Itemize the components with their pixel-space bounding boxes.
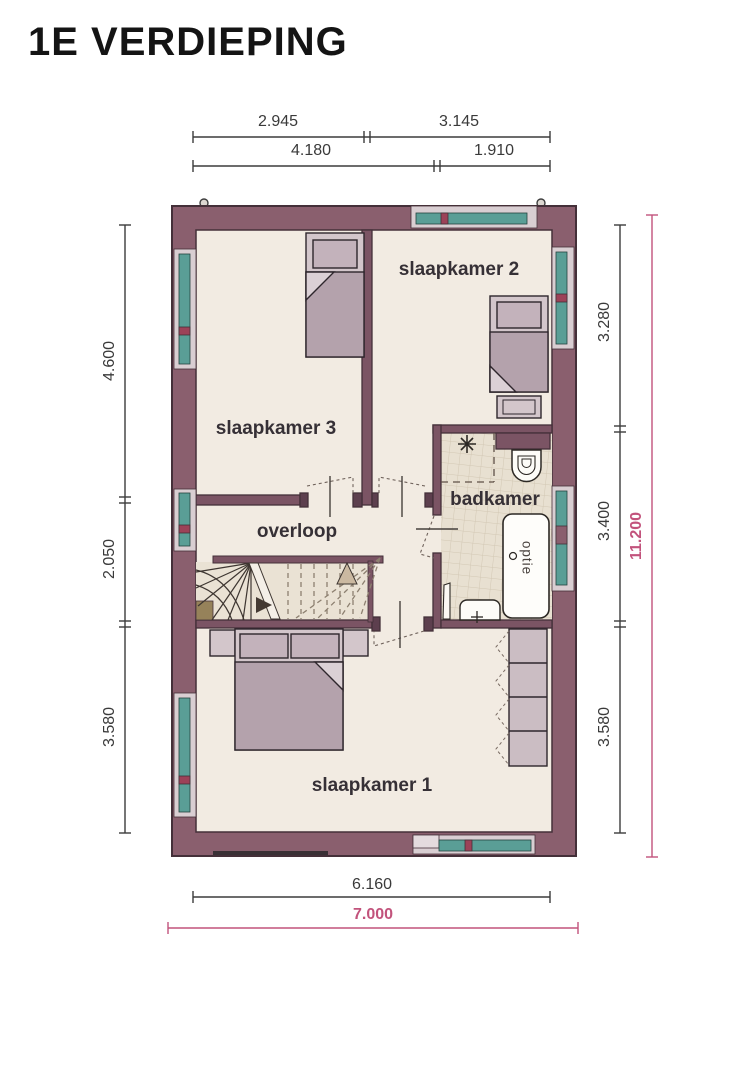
- room-label-overloop: overloop: [257, 521, 337, 543]
- sink: [460, 600, 500, 623]
- window-top-slaapkamer2: [411, 206, 537, 228]
- dim-right-outer: [646, 215, 658, 857]
- floor-plan-page: 1E VERDIEPING slaapkamer 3 slaapkamer 2 …: [0, 0, 743, 1080]
- dim-label-7000: 7.000: [353, 906, 393, 924]
- dim-label-4180: 4.180: [291, 142, 331, 160]
- dim-label-3580-left: 3.580: [101, 707, 119, 747]
- window-bottom-slaapkamer1: [413, 835, 535, 854]
- dim-label-3280: 3.280: [596, 302, 614, 342]
- bed-slaapkamer2: [490, 296, 548, 418]
- dim-label-1910: 1.910: [474, 142, 514, 160]
- dim-label-2945: 2.945: [258, 113, 298, 131]
- bedside-table-right: [343, 630, 368, 656]
- toilet: [512, 450, 541, 482]
- room-label-slaapkamer-1: slaapkamer 1: [312, 775, 432, 797]
- page-title: 1E VERDIEPING: [28, 20, 348, 65]
- bathtub-option-label: optie: [520, 541, 535, 575]
- dim-label-6160: 6.160: [352, 876, 392, 894]
- room-label-slaapkamer-3: slaapkamer 3: [216, 418, 336, 440]
- bed-slaapkamer3: [306, 233, 364, 357]
- radiator: [443, 583, 450, 619]
- threshold-line: [213, 851, 328, 855]
- window-right-slaapkamer2: [552, 247, 574, 349]
- window-right-badkamer: [552, 486, 574, 591]
- window-left-slaapkamer1: [174, 693, 196, 817]
- dim-label-2050: 2.050: [101, 539, 119, 579]
- dim-label-3145: 3.145: [439, 113, 479, 131]
- dim-top-row2: [193, 160, 550, 172]
- dim-label-3400: 3.400: [596, 501, 614, 541]
- dim-left: [119, 225, 131, 833]
- window-left-slaapkamer3: [174, 249, 196, 369]
- window-left-overloop: [174, 489, 196, 551]
- dim-label-4600: 4.600: [101, 341, 119, 381]
- bedside-table-left: [210, 630, 235, 656]
- nightstand: [497, 396, 541, 418]
- room-label-slaapkamer-2: slaapkamer 2: [399, 259, 519, 281]
- dim-right-inner: [614, 225, 626, 833]
- dim-label-3580-right: 3.580: [596, 707, 614, 747]
- room-label-badkamer: badkamer: [450, 489, 540, 511]
- dim-label-11200: 11.200: [628, 512, 646, 560]
